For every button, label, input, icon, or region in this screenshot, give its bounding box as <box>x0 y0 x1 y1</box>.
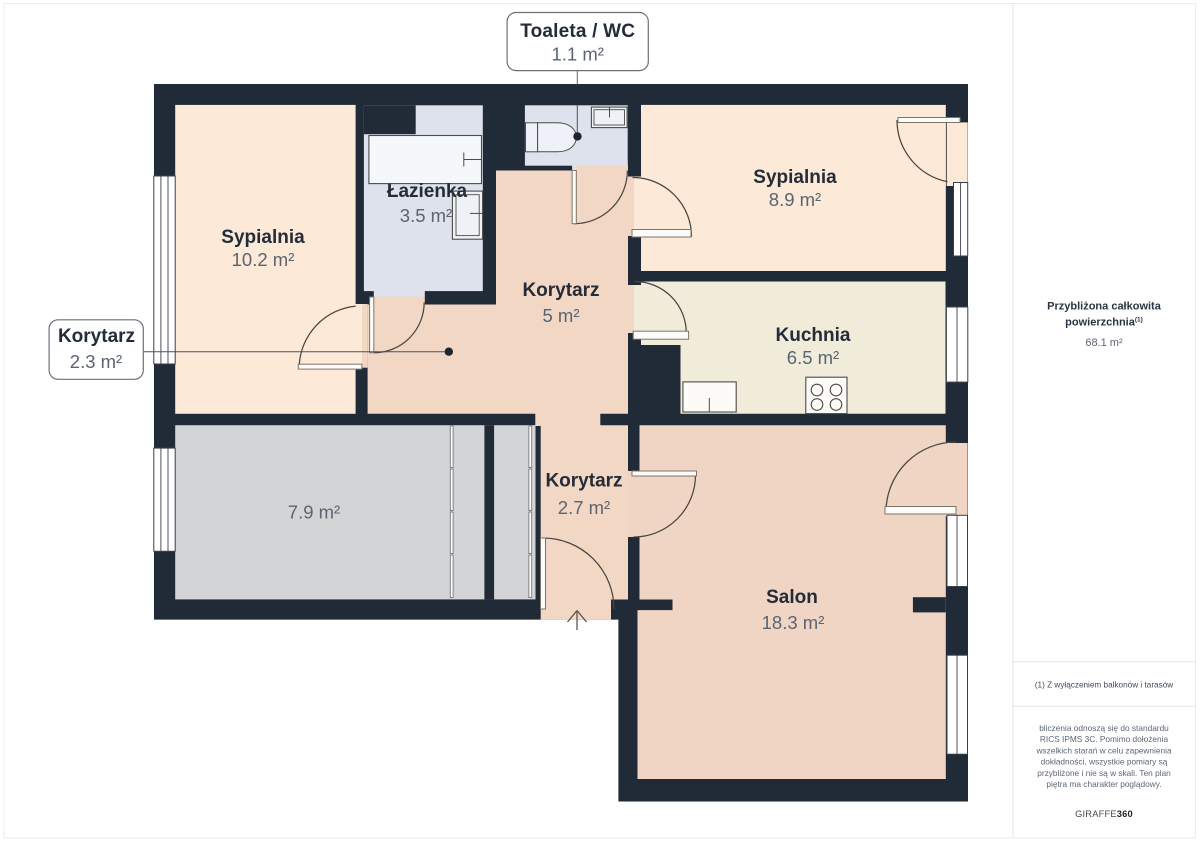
svg-text:GIRAFFE360: GIRAFFE360 <box>1075 809 1133 819</box>
svg-text:18.3 m²: 18.3 m² <box>762 612 825 633</box>
svg-text:(1) Z wyłączeniem balkonów i t: (1) Z wyłączeniem balkonów i tarasów <box>1035 681 1173 690</box>
svg-text:powierzchnia(1): powierzchnia(1) <box>1065 317 1143 329</box>
svg-text:6.5 m²: 6.5 m² <box>787 347 839 368</box>
svg-text:10.2 m²: 10.2 m² <box>232 249 295 270</box>
svg-text:2.3 m²: 2.3 m² <box>70 351 122 372</box>
svg-text:8.9 m²: 8.9 m² <box>769 189 821 210</box>
svg-text:wszelkich starań w celu zapewn: wszelkich starań w celu zapewnienia <box>1035 745 1172 755</box>
svg-text:Kuchnia: Kuchnia <box>776 325 851 346</box>
svg-text:3.5 m²: 3.5 m² <box>400 205 452 226</box>
svg-text:5 m²: 5 m² <box>543 305 580 326</box>
svg-text:7.9 m²: 7.9 m² <box>288 502 340 523</box>
svg-text:Korytarz: Korytarz <box>58 326 135 347</box>
svg-text:Łazienka: Łazienka <box>387 181 468 202</box>
svg-text:Sypialnia: Sypialnia <box>221 227 305 248</box>
svg-text:Sypialnia: Sypialnia <box>753 167 837 188</box>
svg-text:Toaleta / WC: Toaleta / WC <box>520 21 635 42</box>
svg-text:piętra ma charakter poglądowy.: piętra ma charakter poglądowy. <box>1046 779 1161 789</box>
svg-text:1.1 m²: 1.1 m² <box>551 44 603 65</box>
svg-text:RICS IPMS 3C. Pomimo dołożenia: RICS IPMS 3C. Pomimo dołożenia <box>1040 734 1169 744</box>
svg-text:2.7 m²: 2.7 m² <box>558 497 610 518</box>
svg-text:dokładności, wszystkie pomiary: dokładności, wszystkie pomiary są <box>1041 757 1168 767</box>
svg-text:Korytarz: Korytarz <box>522 280 599 301</box>
svg-text:Przybliżona całkowita: Przybliżona całkowita <box>1047 301 1162 313</box>
svg-text:bliczenia odnoszą się do stand: bliczenia odnoszą się do standardu <box>1039 723 1169 733</box>
svg-text:Korytarz: Korytarz <box>545 471 622 492</box>
svg-text:68.1 m²: 68.1 m² <box>1085 337 1123 349</box>
svg-text:przybliżone i nie są w skali.: przybliżone i nie są w skali. Ten plan <box>1037 768 1171 778</box>
svg-text:Salon: Salon <box>766 587 818 608</box>
